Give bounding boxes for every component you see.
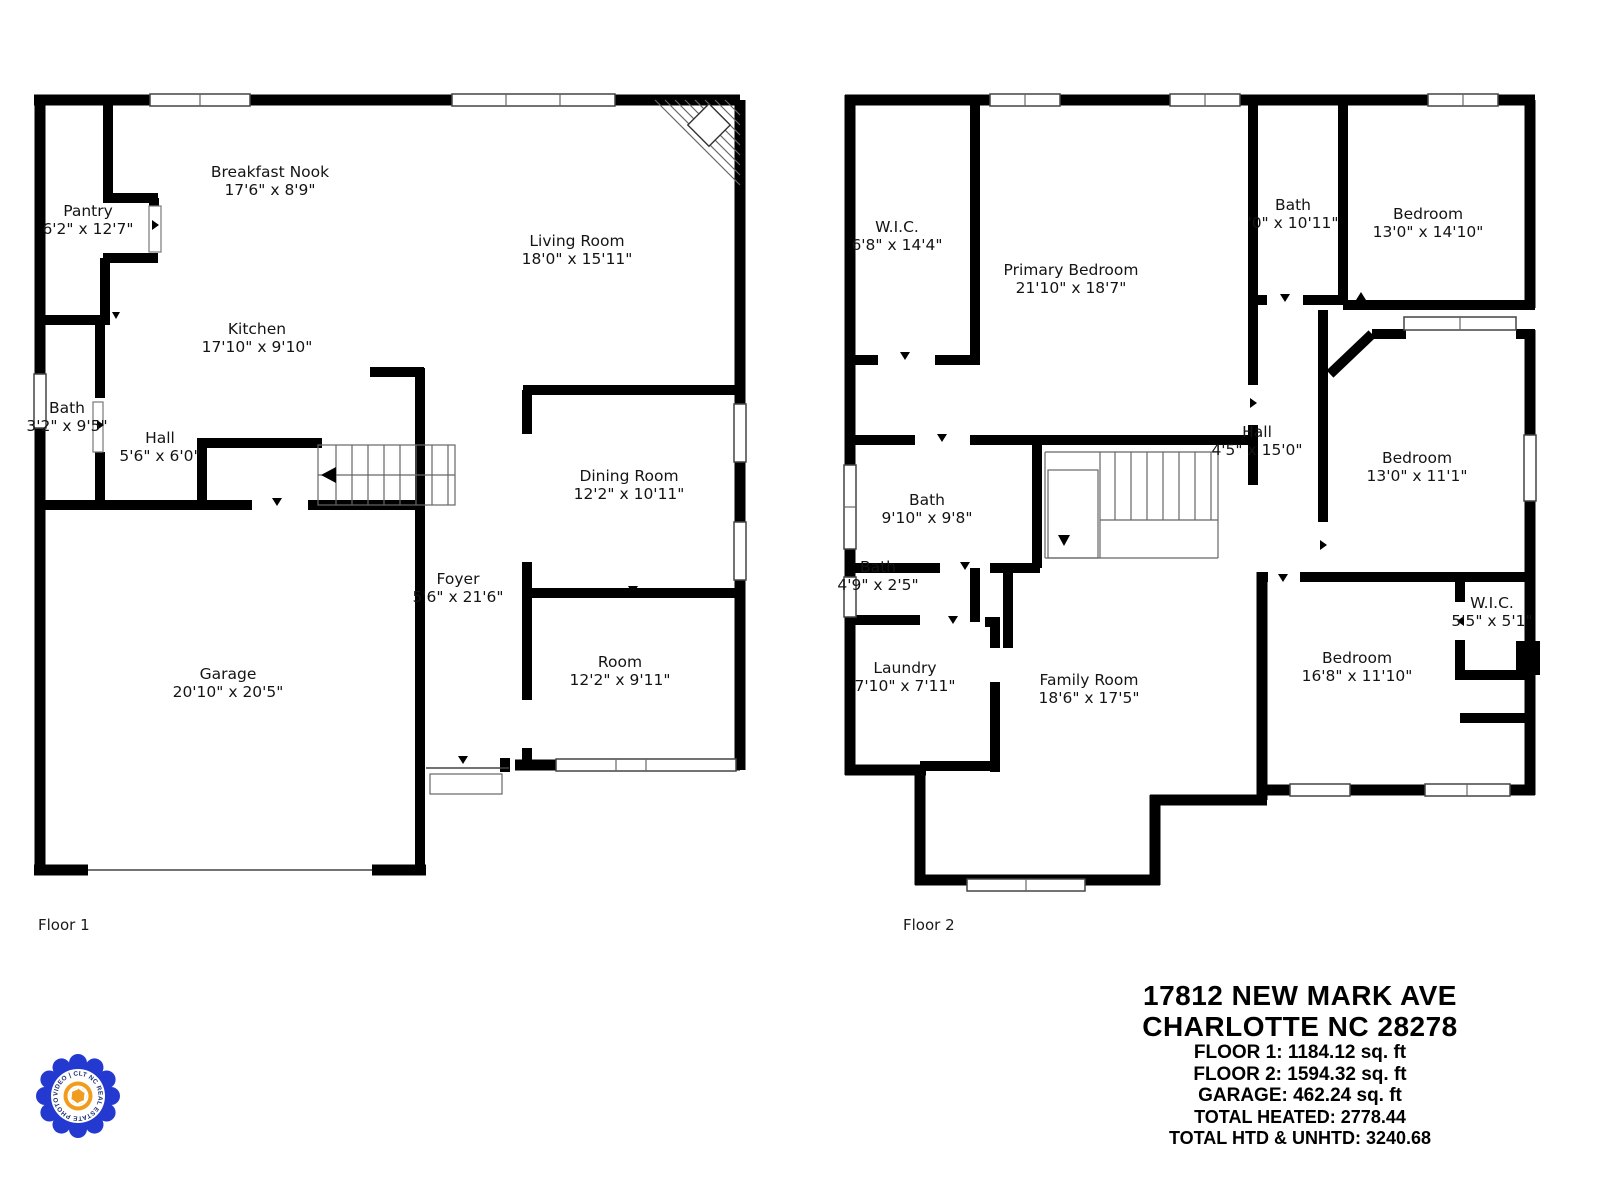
stairs-direction-arrow	[321, 467, 336, 483]
room-label-bath-small: Bath4'9" x 2'5"	[837, 558, 918, 594]
floor1-caption: Floor 1	[38, 916, 90, 934]
room-label-bath-top: Bath'0" x 10'11"	[1247, 196, 1338, 232]
front-porch	[430, 774, 502, 794]
room-label-bath-mid: Bath9'10" x 9'8"	[881, 491, 972, 527]
room-label-hall-f1: Hall5'6" x 6'0"	[119, 429, 200, 465]
floorplan-page: Pantry6'2" x 12'7" Breakfast Nook17'6" x…	[0, 0, 1600, 1200]
room-label-bedroom-bottom: Bedroom16'8" x 11'10"	[1302, 649, 1413, 685]
room-label-living-room: Living Room18'0" x 15'11"	[522, 232, 633, 268]
pantry-door-leaf	[149, 206, 161, 252]
address-block: 17812 NEW MARK AVE CHARLOTTE NC 28278 FL…	[1040, 980, 1560, 1149]
room-label-bath-f1: Bath3'2" x 9'5"	[26, 399, 107, 435]
floor1-area: FLOOR 1: 1184.12 sq. ft	[1040, 1042, 1560, 1064]
address-line2: CHARLOTTE NC 28278	[1040, 1011, 1560, 1042]
room-label-garage: Garage20'10" x 20'5"	[173, 665, 284, 701]
room-label-foyer: Foyer5'6" x 21'6"	[412, 570, 503, 606]
room-label-breakfast-nook: Breakfast Nook17'6" x 8'9"	[211, 163, 329, 199]
floor2-caption: Floor 2	[903, 916, 955, 934]
total-heated: TOTAL HEATED: 2778.44	[1040, 1107, 1560, 1128]
room-label-primary-bedroom: Primary Bedroom21'10" x 18'7"	[1004, 261, 1139, 297]
room-label-bedroom-mid: Bedroom13'0" x 11'1"	[1367, 449, 1468, 485]
room-label-dining-room: Dining Room12'2" x 10'11"	[574, 467, 685, 503]
logo-camera-aperture-icon	[64, 1082, 93, 1111]
stairs-down-arrow	[1058, 535, 1070, 546]
floor2-stairs-icon	[1045, 452, 1218, 558]
address-line1: 17812 NEW MARK AVE	[1040, 980, 1560, 1011]
floor1-stairs-icon	[318, 445, 455, 505]
room-label-pantry: Pantry6'2" x 12'7"	[42, 202, 133, 238]
room-label-kitchen: Kitchen17'10" x 9'10"	[202, 320, 313, 356]
total-htd-unhtd: TOTAL HTD & UNHTD: 3240.68	[1040, 1128, 1560, 1149]
garage-door-line	[88, 768, 509, 870]
room-label-wic-small: W.I.C.5'5" x 5'1"	[1451, 594, 1532, 630]
room-label-wic-primary: W.I.C.6'8" x 14'4"	[851, 218, 942, 254]
fireplace-icon	[655, 100, 740, 185]
garage-area: GARAGE: 462.24 sq. ft	[1040, 1085, 1560, 1107]
photographer-logo-icon: VIDEO | CLT NC REAL ESTATE PHOTO |	[36, 1054, 120, 1138]
room-label-bedroom-tr: Bedroom13'0" x 14'10"	[1373, 205, 1484, 241]
room-label-family-room: Family Room18'6" x 17'5"	[1039, 671, 1140, 707]
floor2-area: FLOOR 2: 1594.32 sq. ft	[1040, 1064, 1560, 1086]
room-label-room: Room12'2" x 9'11"	[570, 653, 671, 689]
wic-chase-block	[1516, 641, 1540, 675]
room-label-laundry: Laundry7'10" x 7'11"	[855, 659, 956, 695]
room-label-hall-f2: Hall4'5" x 15'0"	[1211, 423, 1302, 459]
